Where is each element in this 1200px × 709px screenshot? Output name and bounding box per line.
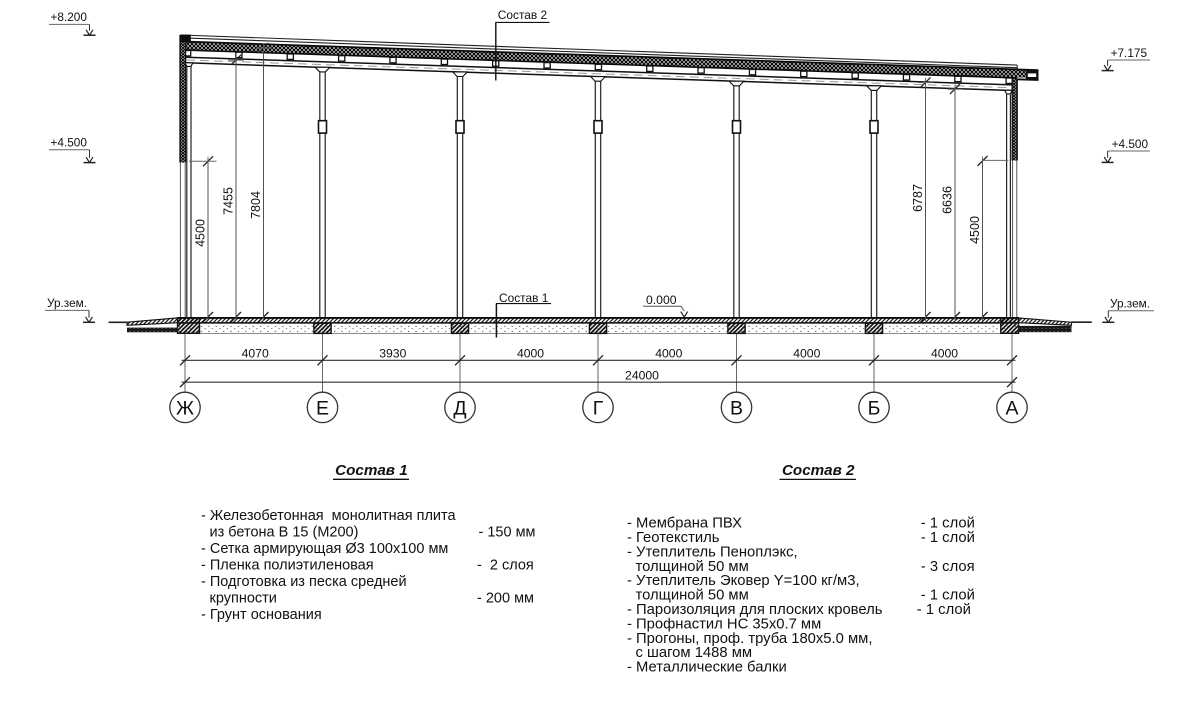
svg-text:- Металлические балки: - Металлические балки bbox=[627, 660, 787, 676]
svg-text:Ур.зем.: Ур.зем. bbox=[47, 296, 87, 310]
svg-text:Д: Д bbox=[453, 397, 466, 419]
svg-text:- 1 слой: - 1 слой bbox=[921, 530, 975, 546]
svg-text:7455: 7455 bbox=[221, 187, 235, 215]
svg-text:- 3 слоя: - 3 слоя bbox=[921, 559, 975, 575]
svg-text:4000: 4000 bbox=[931, 346, 958, 360]
svg-text:В: В bbox=[730, 397, 743, 419]
svg-text:Г: Г bbox=[593, 397, 604, 419]
svg-text:3930: 3930 bbox=[379, 346, 406, 360]
svg-text:Состав 1: Состав 1 bbox=[499, 291, 549, 305]
svg-text:Состав 2: Состав 2 bbox=[782, 462, 855, 479]
svg-text:4000: 4000 bbox=[517, 346, 544, 360]
svg-text:4000: 4000 bbox=[655, 346, 682, 360]
svg-text:+4.500: +4.500 bbox=[51, 136, 88, 150]
svg-text:- 200 мм: - 200 мм bbox=[477, 591, 534, 607]
svg-text:24000: 24000 bbox=[625, 368, 659, 382]
svg-text:Ж: Ж bbox=[176, 397, 194, 419]
svg-text:+7.175: +7.175 bbox=[1111, 46, 1148, 60]
svg-text:0.000: 0.000 bbox=[646, 293, 677, 307]
svg-text:Б: Б bbox=[868, 397, 881, 419]
svg-text:- 1 слой: - 1 слой bbox=[917, 602, 971, 618]
svg-text:крупности: крупности bbox=[210, 591, 277, 607]
svg-text:4500: 4500 bbox=[193, 219, 207, 247]
svg-text:4500: 4500 bbox=[968, 216, 982, 244]
svg-text:4070: 4070 bbox=[242, 346, 269, 360]
svg-text:+4.500: +4.500 bbox=[1112, 137, 1149, 151]
svg-text:Состав 2: Состав 2 bbox=[498, 8, 548, 22]
svg-text:+8.200: +8.200 bbox=[51, 10, 88, 24]
svg-text:из бетона В 15 (М200): из бетона В 15 (М200) bbox=[210, 525, 359, 541]
svg-text:А: А bbox=[1005, 397, 1018, 419]
svg-text:Е: Е bbox=[316, 397, 329, 419]
svg-text:- Железобетонная монолитная п: - Железобетонная монолитная плита bbox=[201, 508, 456, 524]
svg-text:- 150 мм: - 150 мм bbox=[479, 525, 536, 541]
svg-text:Состав 1: Состав 1 bbox=[335, 462, 407, 479]
svg-text:6787: 6787 bbox=[911, 184, 925, 212]
svg-text:- Подготовка из песка средней: - Подготовка из песка средней bbox=[201, 574, 407, 590]
svg-text:- 2 слоя: - 2 слоя bbox=[477, 558, 534, 574]
svg-text:- Грунт основания: - Грунт основания bbox=[201, 607, 322, 623]
svg-text:7804: 7804 bbox=[249, 191, 263, 219]
svg-text:4000: 4000 bbox=[793, 346, 820, 360]
svg-text:- Пленка полиэтиленовая: - Пленка полиэтиленовая bbox=[201, 558, 374, 574]
svg-text:- Сетка армирующая Ø3 100х100: - Сетка армирующая Ø3 100х100 мм bbox=[201, 541, 448, 557]
svg-text:6636: 6636 bbox=[940, 186, 954, 214]
svg-text:Ур.зем.: Ур.зем. bbox=[1110, 297, 1150, 311]
